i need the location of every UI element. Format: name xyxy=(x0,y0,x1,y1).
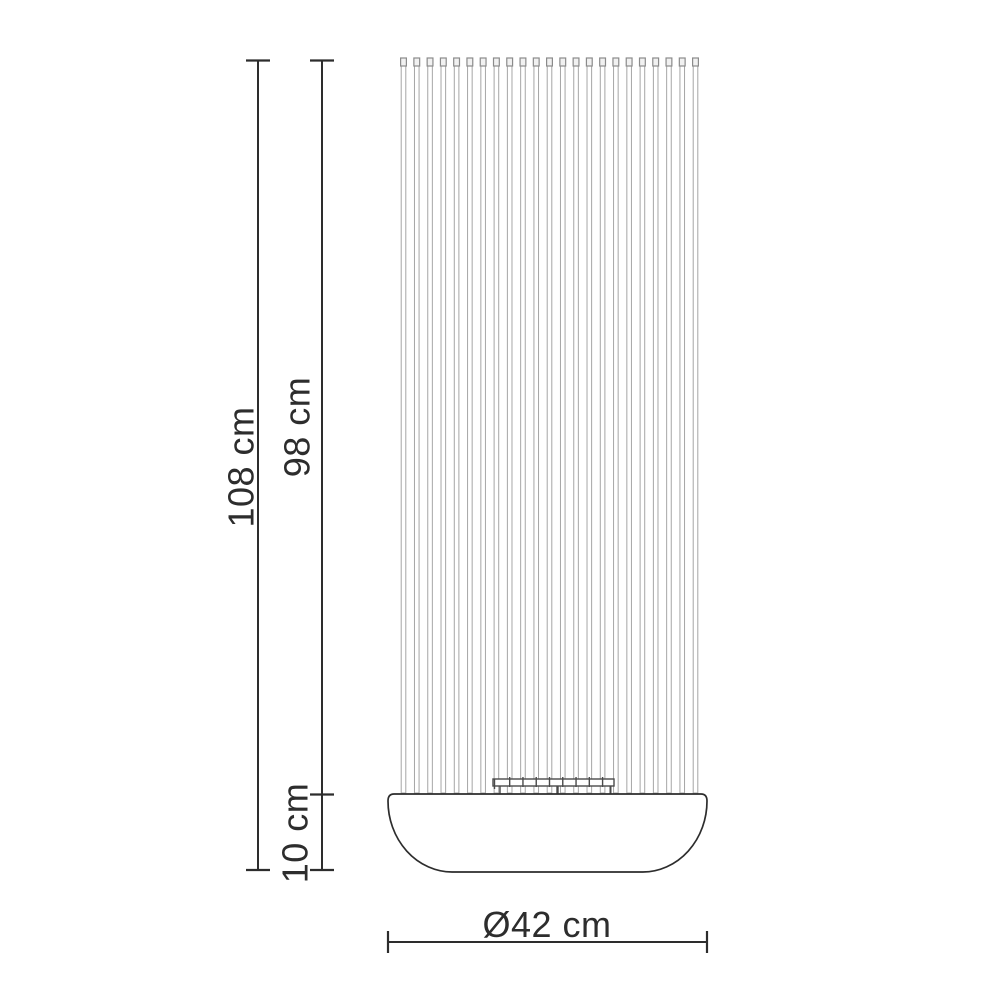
dimension-diagram: 108 cm 98 cm 10 cm Ø42 cm xyxy=(0,0,1000,1000)
rod-cap xyxy=(520,58,526,66)
rod-cap xyxy=(613,58,619,66)
diagram-canvas: 108 cm 98 cm 10 cm Ø42 cm xyxy=(0,0,1000,1000)
rod-cap xyxy=(653,58,659,66)
rod-cap xyxy=(679,58,685,66)
rod-cap xyxy=(533,58,539,66)
rod xyxy=(401,58,406,793)
rod xyxy=(547,58,552,793)
lamp-rods xyxy=(401,58,699,793)
rod xyxy=(600,58,605,793)
rod-cap xyxy=(640,58,646,66)
rod-cap xyxy=(547,58,553,66)
rod-cap xyxy=(467,58,473,66)
rod xyxy=(454,58,459,793)
rod xyxy=(680,58,685,793)
lamp-base xyxy=(388,794,707,872)
rod-cap xyxy=(586,58,592,66)
rod-cap xyxy=(414,58,420,66)
rod-cap xyxy=(507,58,513,66)
rod-cap xyxy=(626,58,632,66)
rod xyxy=(428,58,433,793)
rod-cap xyxy=(401,58,407,66)
rod xyxy=(640,58,645,793)
rod-cap xyxy=(454,58,460,66)
rod xyxy=(667,58,672,793)
rod xyxy=(693,58,698,793)
dimension-shade-and-base-height: 98 cm 10 cm xyxy=(275,60,334,883)
rod xyxy=(494,58,499,793)
rod xyxy=(468,58,473,793)
dimension-total-height: 108 cm xyxy=(221,60,270,871)
rod-cap xyxy=(573,58,579,66)
rod xyxy=(574,58,579,793)
rod xyxy=(414,58,419,793)
rod xyxy=(521,58,526,793)
rod-cap xyxy=(666,58,672,66)
label-base-height: 10 cm xyxy=(275,783,316,884)
label-base-diameter: Ø42 cm xyxy=(482,904,611,945)
rod-cap xyxy=(560,58,566,66)
rod-cap xyxy=(693,58,699,66)
rod-cap xyxy=(480,58,486,66)
rod-cap xyxy=(494,58,500,66)
rod xyxy=(534,58,539,793)
bracket-bar xyxy=(493,779,614,786)
dimension-base-diameter: Ø42 cm xyxy=(388,904,707,953)
rod-cap xyxy=(440,58,446,66)
rod xyxy=(627,58,632,793)
label-shade-height: 98 cm xyxy=(277,377,318,478)
rod xyxy=(560,58,565,793)
rod xyxy=(481,58,486,793)
rod xyxy=(653,58,658,793)
rod-cap xyxy=(427,58,433,66)
rod xyxy=(587,58,592,793)
label-total-height: 108 cm xyxy=(221,406,262,527)
rod xyxy=(507,58,512,793)
rod-cap xyxy=(600,58,606,66)
rod xyxy=(614,58,619,793)
rod xyxy=(441,58,446,793)
